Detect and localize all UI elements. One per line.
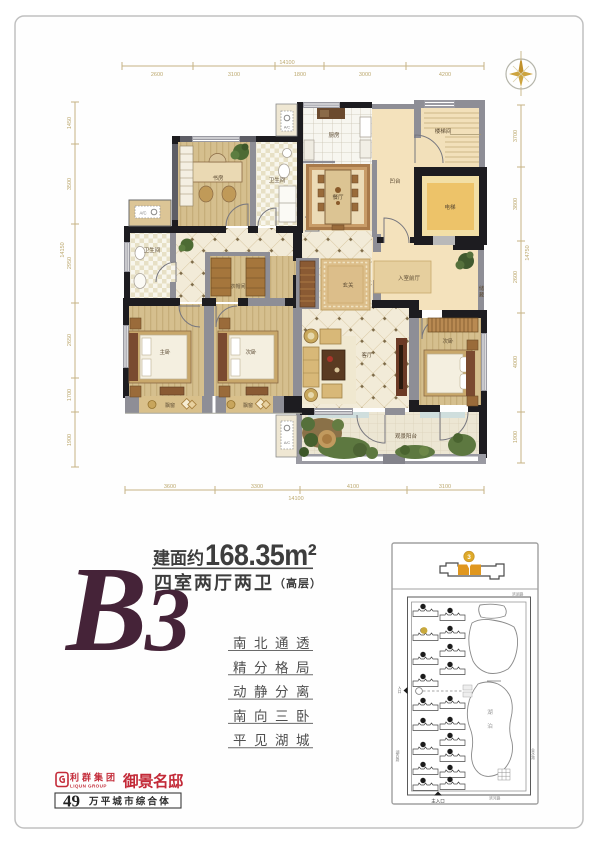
svg-text:凹台: 凹台 bbox=[389, 177, 401, 185]
svg-text:入口: 入口 bbox=[397, 685, 402, 694]
svg-text:精分格局: 精分格局 bbox=[233, 660, 317, 675]
svg-text:LIQUN GROUP: LIQUN GROUP bbox=[70, 784, 107, 789]
svg-text:金水路: 金水路 bbox=[530, 747, 535, 760]
svg-text:客厅: 客厅 bbox=[361, 351, 373, 359]
svg-text:1700: 1700 bbox=[67, 389, 73, 401]
svg-text:南北通透: 南北通透 bbox=[233, 636, 317, 651]
svg-text:主卧: 主卧 bbox=[159, 348, 171, 356]
svg-text:49: 49 bbox=[63, 792, 80, 811]
svg-text:A/C: A/C bbox=[140, 211, 147, 216]
svg-text:湖: 湖 bbox=[487, 708, 493, 716]
svg-text:动静分离: 动静分离 bbox=[233, 684, 317, 700]
svg-text:次卧: 次卧 bbox=[442, 337, 454, 345]
svg-text:滨河路: 滨河路 bbox=[489, 796, 501, 801]
svg-text:A/C: A/C bbox=[284, 126, 291, 130]
svg-text:飘窗: 飘窗 bbox=[243, 402, 253, 409]
svg-text:4200: 4200 bbox=[439, 72, 451, 78]
svg-text:厨房: 厨房 bbox=[328, 131, 340, 139]
svg-text:入室前厅: 入室前厅 bbox=[398, 274, 421, 282]
svg-text:1800: 1800 bbox=[294, 72, 306, 78]
svg-text:1900: 1900 bbox=[513, 431, 519, 443]
svg-text:建面约: 建面约 bbox=[153, 548, 204, 568]
svg-text:书房: 书房 bbox=[212, 174, 224, 182]
svg-text:利群集团: 利群集团 bbox=[69, 772, 118, 783]
svg-text:滨湖路: 滨湖路 bbox=[512, 592, 524, 597]
svg-text:4000: 4000 bbox=[513, 356, 519, 368]
svg-text:玄关: 玄关 bbox=[342, 281, 354, 289]
svg-text:卫生间: 卫生间 bbox=[269, 176, 286, 184]
svg-text:3: 3 bbox=[467, 554, 471, 561]
svg-text:湖西路: 湖西路 bbox=[395, 749, 400, 762]
svg-text:14150: 14150 bbox=[60, 242, 66, 257]
svg-text:餐厅: 餐厅 bbox=[332, 193, 344, 201]
svg-text:4100: 4100 bbox=[347, 484, 359, 490]
svg-text:3100: 3100 bbox=[439, 484, 451, 490]
svg-text:14100: 14100 bbox=[279, 60, 294, 66]
svg-text:3800: 3800 bbox=[513, 198, 519, 210]
svg-text:14100: 14100 bbox=[288, 496, 303, 502]
svg-text:电梯: 电梯 bbox=[444, 203, 456, 211]
svg-text:御景名邸: 御景名邸 bbox=[122, 772, 184, 791]
svg-text:主入口: 主入口 bbox=[431, 798, 445, 805]
svg-text:衣帽间: 衣帽间 bbox=[230, 283, 245, 290]
svg-text:2650: 2650 bbox=[67, 334, 73, 346]
svg-text:3700: 3700 bbox=[513, 130, 519, 142]
svg-text:万平城市综合体: 万平城市综合体 bbox=[88, 796, 171, 808]
svg-text:2950: 2950 bbox=[67, 257, 73, 269]
svg-text:B: B bbox=[64, 542, 147, 677]
svg-text:卫生间: 卫生间 bbox=[144, 246, 161, 254]
svg-text:泊: 泊 bbox=[487, 722, 493, 730]
svg-text:3300: 3300 bbox=[251, 484, 263, 490]
svg-text:3100: 3100 bbox=[228, 72, 240, 78]
svg-text:南向三卧: 南向三卧 bbox=[233, 709, 317, 724]
svg-text:次卧: 次卧 bbox=[245, 348, 257, 356]
svg-text:楼梯间: 楼梯间 bbox=[435, 127, 452, 135]
svg-text:2600: 2600 bbox=[513, 271, 519, 283]
svg-text:3600: 3600 bbox=[164, 484, 176, 490]
svg-text:1900: 1900 bbox=[67, 434, 73, 446]
svg-text:（高层）: （高层） bbox=[274, 576, 322, 590]
svg-text:A/C: A/C bbox=[284, 441, 291, 445]
svg-text:3000: 3000 bbox=[359, 72, 371, 78]
svg-text:2600: 2600 bbox=[151, 72, 163, 78]
svg-text:藏: 藏 bbox=[479, 292, 484, 299]
svg-text:观景阳台: 观景阳台 bbox=[395, 432, 418, 440]
svg-text:飘窗: 飘窗 bbox=[165, 402, 175, 409]
svg-text:1450: 1450 bbox=[67, 117, 73, 129]
svg-text:平见湖城: 平见湖城 bbox=[233, 733, 317, 748]
svg-text:14750: 14750 bbox=[525, 245, 531, 260]
svg-text:168.35m²: 168.35m² bbox=[205, 539, 316, 573]
svg-text:储: 储 bbox=[479, 285, 484, 292]
svg-text:四室两厅两卫: 四室两厅两卫 bbox=[154, 572, 274, 593]
svg-text:3500: 3500 bbox=[67, 178, 73, 190]
